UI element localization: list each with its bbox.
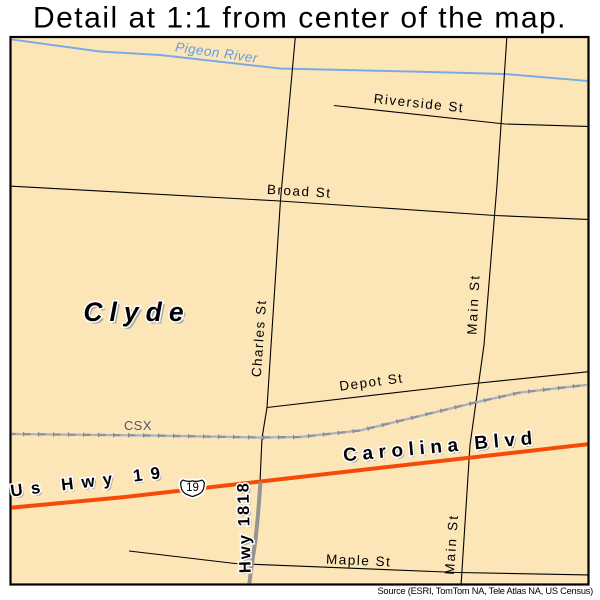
svg-text:19: 19	[186, 482, 199, 494]
svg-text:Hwy 1818: Hwy 1818	[234, 481, 254, 573]
svg-text:Clyde: Clyde	[83, 297, 190, 327]
svg-text:Maple St: Maple St	[326, 552, 392, 570]
svg-text:Detail at 1:1 from center of t: Detail at 1:1 from center of the map.	[33, 2, 567, 35]
svg-text:CSX: CSX	[124, 418, 152, 433]
svg-text:Main St: Main St	[464, 273, 482, 335]
svg-text:Source (ESRI, TomTom NA, Tele: Source (ESRI, TomTom NA, Tele Atlas NA, …	[377, 586, 593, 596]
